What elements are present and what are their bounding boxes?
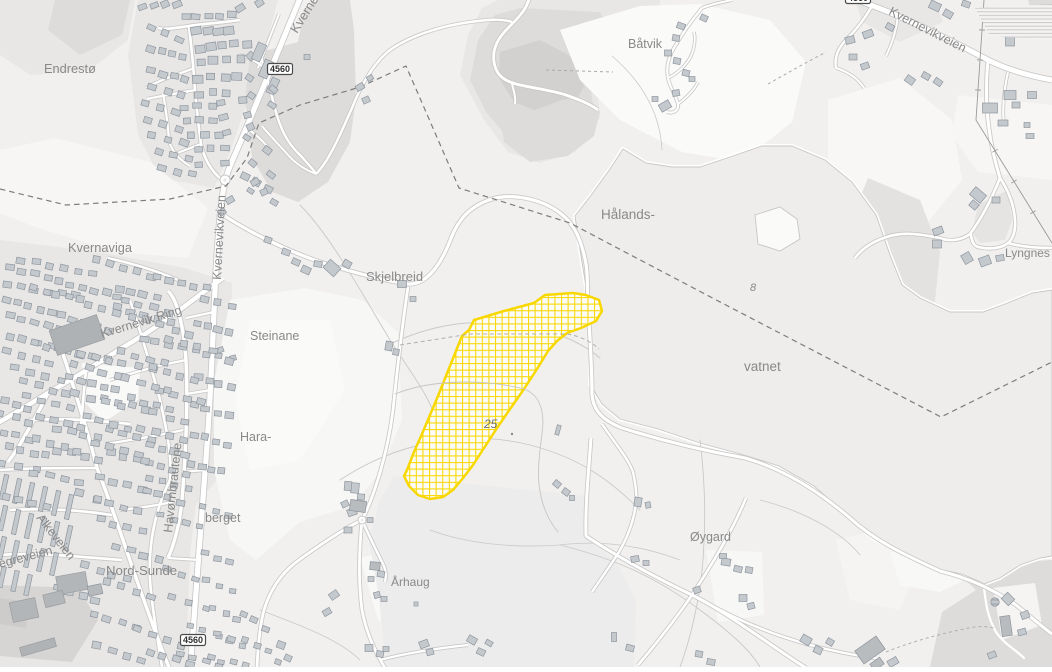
svg-text:Båtvik: Båtvik [628, 37, 663, 51]
svg-text:4560: 4560 [183, 635, 203, 645]
svg-text:Hara-: Hara- [240, 430, 271, 444]
svg-text:Lyngnes: Lyngnes [1005, 246, 1050, 260]
svg-text:berget: berget [205, 511, 241, 525]
svg-text:8: 8 [750, 282, 757, 294]
svg-text:Skjelbreid: Skjelbreid [366, 269, 423, 284]
svg-text:Hålands-: Hålands- [601, 207, 655, 222]
svg-text:Kvernaviga: Kvernaviga [68, 240, 133, 255]
svg-text:4560: 4560 [270, 64, 290, 74]
svg-text:Steinane: Steinane [250, 329, 299, 343]
svg-text:vatnet: vatnet [744, 359, 781, 374]
svg-text:Århaug: Århaug [391, 574, 430, 589]
svg-text:4560: 4560 [848, 0, 868, 3]
svg-text:Øygard: Øygard [690, 530, 731, 544]
svg-text:Endrestø: Endrestø [44, 61, 96, 76]
svg-text:Nord-Sunde: Nord-Sunde [106, 563, 177, 578]
svg-text:25: 25 [483, 417, 498, 431]
